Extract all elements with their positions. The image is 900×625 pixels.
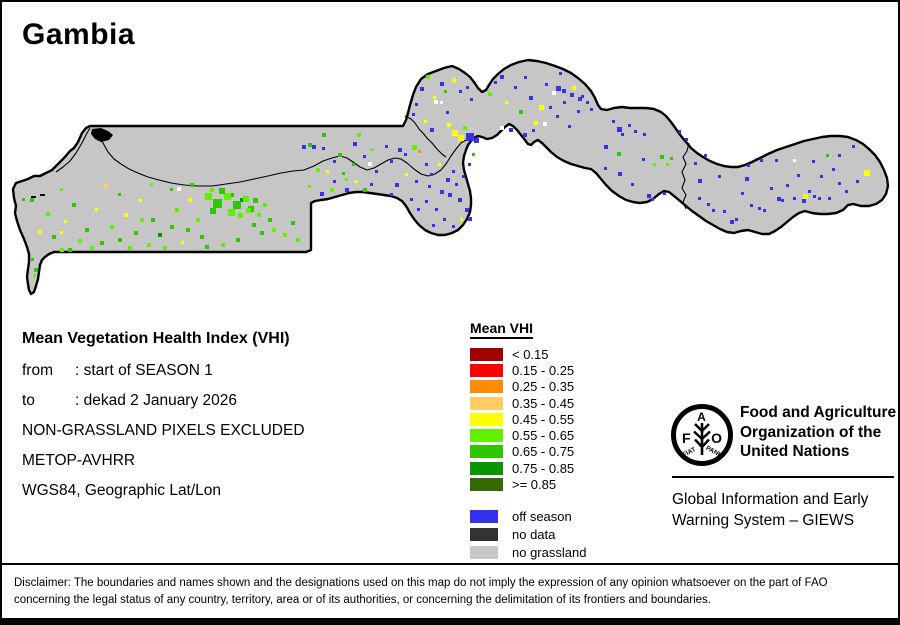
vhi-pixel xyxy=(797,174,800,177)
vhi-pixel xyxy=(170,225,174,229)
info-label-to: to xyxy=(22,392,75,410)
vhi-pixel xyxy=(793,159,796,162)
vhi-pixel xyxy=(246,208,251,213)
vhi-pixel xyxy=(653,163,656,166)
vhi-pixel xyxy=(612,120,615,123)
legend-row: 0.75 - 0.85 xyxy=(470,460,574,476)
vhi-pixel xyxy=(72,203,76,207)
vhi-pixel xyxy=(363,155,366,158)
fao-name-line: Organization of the xyxy=(740,423,896,443)
vhi-pixel xyxy=(440,101,443,104)
vhi-pixel xyxy=(488,92,492,96)
vhi-pixel xyxy=(462,175,465,178)
legend-swatch xyxy=(470,364,503,377)
legend-swatch xyxy=(470,413,503,426)
legend-swatch xyxy=(470,478,503,491)
vhi-pixel xyxy=(326,170,329,173)
vhi-pixel xyxy=(448,193,452,197)
legend-row: no data xyxy=(470,525,586,543)
vhi-pixel xyxy=(777,197,781,201)
vhi-pixel xyxy=(832,168,835,171)
vhi-pixel xyxy=(770,187,773,190)
vhi-pixel xyxy=(435,208,438,211)
vhi-pixel xyxy=(532,129,535,132)
vhi-pixel xyxy=(534,121,538,125)
vhi-pixel xyxy=(68,248,72,252)
vhi-pixel xyxy=(500,126,504,130)
vhi-pixel xyxy=(34,268,38,272)
vhi-pixel xyxy=(140,218,144,222)
coast-islet-mark xyxy=(31,196,36,198)
vhi-pixel xyxy=(572,86,576,90)
vhi-pixel xyxy=(390,160,393,163)
vhi-pixel xyxy=(463,126,467,130)
vhi-pixel xyxy=(820,175,823,178)
legend-label: no data xyxy=(512,527,555,542)
vhi-pixel xyxy=(631,183,634,186)
legend-swatch xyxy=(470,397,503,410)
vhi-pixel xyxy=(852,145,855,148)
legend-label: 0.55 - 0.65 xyxy=(512,428,574,443)
vhi-pixel xyxy=(678,130,681,133)
vhi-pixel xyxy=(539,105,544,110)
vhi-pixel xyxy=(415,180,418,183)
vhi-pixel xyxy=(529,96,533,100)
fao-logo-letter-a: A xyxy=(697,410,706,424)
legend-swatch xyxy=(470,546,498,559)
vhi-pixel xyxy=(268,218,272,222)
vhi-pixel xyxy=(775,159,778,162)
vhi-pixel xyxy=(494,81,497,84)
vhi-pixel xyxy=(552,91,556,95)
gambia-vhi-map xyxy=(2,54,898,306)
vhi-pixel xyxy=(430,128,434,132)
vhi-pixel xyxy=(604,167,607,170)
vhi-pixel xyxy=(735,218,738,221)
giews-line: Global Information and Early xyxy=(672,489,868,510)
disclaimer-line: Disclaimer: The boundaries and names sho… xyxy=(14,575,896,592)
vhi-pixel xyxy=(368,162,372,166)
vhi-pixel xyxy=(302,145,306,149)
vhi-pixel xyxy=(320,192,324,196)
vhi-pixel xyxy=(786,184,789,187)
vhi-pixel xyxy=(395,183,399,187)
vhi-pixel xyxy=(205,193,212,200)
vhi-pixel xyxy=(238,213,243,218)
vhi-pixel xyxy=(813,195,816,198)
vhi-pixel xyxy=(200,235,204,239)
vhi-pixel xyxy=(452,225,455,228)
giews-block: Global Information and Early Warning Sys… xyxy=(672,489,868,531)
vhi-pixel xyxy=(741,192,744,195)
vhi-pixel xyxy=(458,198,462,202)
vhi-pixel xyxy=(864,170,870,176)
vhi-pixel xyxy=(425,200,428,203)
vhi-pixel xyxy=(586,101,589,104)
disclaimer-line: concerning the legal status of any count… xyxy=(14,592,896,609)
vhi-pixel xyxy=(559,72,562,75)
vhi-pixel xyxy=(856,180,859,183)
vhi-pixel xyxy=(333,180,336,183)
legend-swatch xyxy=(470,462,503,475)
vhi-pixel xyxy=(46,212,50,216)
vhi-pixel xyxy=(763,209,766,212)
vhi-pixel xyxy=(745,177,749,181)
vhi-pixel xyxy=(210,208,216,214)
vhi-pixel xyxy=(617,152,621,156)
info-value-to: : dekad 2 January 2026 xyxy=(75,392,237,409)
vhi-pixel xyxy=(818,197,821,200)
legend-row: >= 0.85 xyxy=(470,476,574,492)
coast-islet-mark xyxy=(40,194,45,196)
vhi-pixel xyxy=(60,248,64,252)
vhi-pixel xyxy=(549,106,552,109)
legend-label: 0.75 - 0.85 xyxy=(512,461,574,476)
vhi-pixel xyxy=(628,124,631,127)
vhi-pixel xyxy=(802,199,806,203)
legend-row: 0.65 - 0.75 xyxy=(470,444,574,460)
vhi-pixel xyxy=(355,180,358,183)
vhi-pixel xyxy=(60,188,63,191)
vhi-pixel xyxy=(434,100,438,104)
vhi-pixel xyxy=(357,133,361,137)
vhi-pixel xyxy=(118,238,122,242)
legend-row: no grassland xyxy=(470,544,586,562)
info-value-from: : start of SEASON 1 xyxy=(75,362,213,379)
vhi-pixel xyxy=(452,130,458,136)
vhi-pixel xyxy=(466,133,474,141)
vhi-pixel xyxy=(793,197,796,200)
vhi-pixel xyxy=(519,110,523,114)
vhi-pixel xyxy=(52,235,56,239)
vhi-pixel xyxy=(446,111,449,114)
vhi-pixel xyxy=(291,221,295,225)
vhi-pixel xyxy=(345,188,349,192)
legend-row: 0.15 - 0.25 xyxy=(470,362,574,378)
legend-row: 0.45 - 0.55 xyxy=(470,411,574,427)
vhi-pixel xyxy=(446,178,450,182)
vhi-pixel xyxy=(747,164,750,167)
vhi-pixel xyxy=(698,197,701,200)
vhi-pixel xyxy=(618,172,622,176)
vhi-pixel xyxy=(433,96,436,99)
fao-divider xyxy=(672,476,894,478)
vhi-pixel xyxy=(460,218,463,221)
legend-swatch xyxy=(470,445,503,458)
vhi-pixel xyxy=(647,194,651,198)
legend-label: 0.65 - 0.75 xyxy=(512,444,574,459)
legend-row: 0.35 - 0.45 xyxy=(470,395,574,411)
info-line-sensor: METOP-AVHRR xyxy=(22,452,305,482)
vhi-pixel xyxy=(177,187,181,191)
vhi-pixel xyxy=(585,72,588,75)
vhi-pixel xyxy=(338,153,342,157)
country-shape xyxy=(13,60,888,294)
vhi-legend: Mean VHI < 0.15 0.15 - 0.25 0.25 - 0.35 … xyxy=(470,320,574,493)
vhi-pixel xyxy=(472,153,475,156)
vhi-pixel xyxy=(370,148,373,151)
vhi-pixel xyxy=(718,175,721,178)
fao-motto-fiat: FIAT xyxy=(681,446,697,459)
vhi-pixel xyxy=(663,192,666,195)
vhi-pixel xyxy=(424,120,427,123)
fao-logo-letter-o: O xyxy=(711,430,722,446)
vhi-pixel xyxy=(181,241,184,244)
fao-logo: A F O FIAT PANIS xyxy=(670,403,734,467)
vhi-pixel xyxy=(134,231,138,235)
vhi-pixel xyxy=(170,188,173,191)
vhi-pixel xyxy=(60,231,63,234)
vhi-pixel xyxy=(221,243,225,247)
vhi-pixel xyxy=(190,183,194,187)
vhi-pixel xyxy=(838,154,841,157)
vhi-pixel xyxy=(470,98,473,101)
fao-name-block: Food and Agriculture Organization of the… xyxy=(740,403,896,462)
vhi-pixel xyxy=(210,188,214,192)
legend-row: off season xyxy=(470,507,586,525)
info-label-from: from xyxy=(22,362,75,380)
vhi-pixel xyxy=(730,220,734,224)
vhi-pixel xyxy=(412,145,417,150)
vhi-pixel xyxy=(390,193,393,196)
vhi-pixel xyxy=(432,224,435,227)
page-title: Gambia xyxy=(22,18,135,52)
vhi-pixel xyxy=(556,115,559,118)
vhi-pixel xyxy=(260,231,264,235)
vhi-pixel xyxy=(410,198,413,201)
disclaimer: Disclaimer: The boundaries and names sho… xyxy=(14,575,896,609)
vhi-pixel xyxy=(417,208,420,211)
vhi-pixel xyxy=(78,239,82,243)
vhi-pixel xyxy=(147,243,151,247)
vhi-pixel xyxy=(312,145,316,149)
vhi-pixel xyxy=(22,198,25,201)
vhi-pixel xyxy=(175,208,179,212)
vhi-pixel xyxy=(257,213,261,217)
legend-label: 0.15 - 0.25 xyxy=(512,363,574,378)
vhi-pixel xyxy=(474,138,479,143)
vhi-pixel xyxy=(458,135,464,141)
vhi-pixel xyxy=(590,108,593,111)
vhi-pixel xyxy=(642,158,645,161)
vhi-pixel xyxy=(110,225,114,229)
vhi-pixel xyxy=(812,160,815,163)
vhi-pixel xyxy=(426,75,430,79)
vhi-pixel xyxy=(363,188,367,192)
legend-row: < 0.15 xyxy=(470,346,574,362)
vhi-pixel xyxy=(570,93,574,97)
vhi-pixel xyxy=(375,170,378,173)
vhi-pixel xyxy=(415,103,418,106)
vhi-pixel xyxy=(398,148,402,152)
vhi-pixel xyxy=(420,87,424,91)
vhi-pixel xyxy=(604,145,608,149)
vhi-pixel xyxy=(430,173,433,176)
legend-swatch xyxy=(470,380,503,393)
vhi-pixel xyxy=(412,113,415,116)
vhi-pixel xyxy=(95,208,98,211)
vhi-pixel xyxy=(213,199,222,208)
map-document-frame: Gambia Mean Vegetation Health Index (VHI… xyxy=(0,0,900,625)
info-heading: Mean Vegetation Health Index (VHI) xyxy=(22,330,305,362)
legend-row: 0.25 - 0.35 xyxy=(470,379,574,395)
vhi-pixel xyxy=(545,83,548,86)
vhi-pixel xyxy=(158,233,162,237)
vhi-pixel xyxy=(563,101,566,104)
vhi-pixel xyxy=(233,201,241,209)
vhi-pixel xyxy=(838,182,841,185)
vhi-pixel xyxy=(568,125,571,128)
vhi-pixel xyxy=(128,246,132,250)
vhi-pixel xyxy=(452,170,455,173)
vhi-pixel xyxy=(651,198,654,201)
vhi-pixel xyxy=(447,123,451,127)
info-line-projection: WGS84, Geographic Lat/Lon xyxy=(22,482,305,512)
info-row-to: to: dekad 2 January 2026 xyxy=(22,392,305,422)
vhi-pixel xyxy=(781,199,784,202)
fao-name-line: United Nations xyxy=(740,442,896,462)
vhi-pixel xyxy=(634,130,637,133)
vhi-pixel xyxy=(758,207,761,210)
vhi-pixel xyxy=(30,198,34,202)
vhi-pixel xyxy=(322,133,326,137)
vhi-pixel xyxy=(196,218,200,222)
vhi-pixel xyxy=(308,143,312,147)
vhi-pixel xyxy=(308,185,311,188)
vhi-pixel xyxy=(283,233,287,237)
vhi-pixel xyxy=(205,245,209,249)
vhi-pixel xyxy=(577,110,580,113)
vhi-pixel xyxy=(704,154,707,157)
vhi-pixel xyxy=(236,238,240,242)
vhi-pixel xyxy=(712,209,715,212)
vhi-pixel xyxy=(322,147,325,150)
vhi-pixel xyxy=(352,163,355,166)
vhi-pixel xyxy=(428,185,431,188)
vhi-pixel xyxy=(252,223,256,227)
vhi-pixel xyxy=(578,97,582,101)
vhi-pixel xyxy=(468,217,472,221)
vhi-pixel xyxy=(670,157,673,160)
vhi-pixel xyxy=(723,210,726,213)
vhi-pixel xyxy=(345,178,348,181)
vhi-pixel xyxy=(425,163,428,166)
legend-row: 0.55 - 0.65 xyxy=(470,427,574,443)
legend-label: 0.35 - 0.45 xyxy=(512,396,574,411)
vhi-pixel xyxy=(85,228,89,232)
vhi-pixel xyxy=(808,190,811,193)
vhi-pixel xyxy=(38,230,42,234)
vhi-pixel xyxy=(440,82,444,86)
vhi-pixel xyxy=(523,133,527,137)
vhi-pixel xyxy=(228,209,235,216)
vhi-pixel xyxy=(118,193,121,196)
disclaimer-divider xyxy=(2,563,898,565)
vhi-pixel xyxy=(440,190,444,194)
vhi-pixel xyxy=(707,203,710,206)
vhi-pixel xyxy=(452,78,456,82)
info-line-exclusion: NON-GRASSLAND PIXELS EXCLUDED xyxy=(22,422,305,452)
vhi-pixel xyxy=(666,163,669,166)
vhi-pixel xyxy=(698,179,702,183)
vhi-pixel xyxy=(90,246,94,250)
vhi-pixel xyxy=(224,193,231,200)
vhi-pixel xyxy=(505,101,508,104)
legend-title: Mean VHI xyxy=(470,320,533,339)
vhi-pixel xyxy=(468,163,471,166)
vhi-pixel xyxy=(31,258,34,261)
vhi-pixel xyxy=(509,128,513,132)
vhi-pixel xyxy=(163,246,167,250)
vhi-pixel xyxy=(643,133,646,136)
vhi-pixel xyxy=(524,76,527,79)
vhi-pixel xyxy=(253,198,258,203)
vhi-pixel xyxy=(104,184,108,188)
vhi-pixel xyxy=(139,199,142,202)
vhi-pixel xyxy=(443,218,446,221)
legend-label: 0.45 - 0.55 xyxy=(512,412,574,427)
vhi-pixel xyxy=(33,274,36,277)
vhi-pixel xyxy=(188,198,192,202)
vhi-pixel xyxy=(151,218,155,222)
vhi-pixel xyxy=(760,159,763,162)
vhi-pixel xyxy=(750,204,753,207)
legend-label: off season xyxy=(512,509,572,524)
info-row-from: from: start of SEASON 1 xyxy=(22,362,305,392)
vhi-pixel xyxy=(64,220,67,223)
map-info-block: Mean Vegetation Health Index (VHI) from:… xyxy=(22,330,305,512)
legend-label: >= 0.85 xyxy=(512,477,556,492)
vhi-pixel xyxy=(826,154,829,157)
vhi-pixel xyxy=(405,173,408,176)
vhi-pixel xyxy=(418,150,421,153)
vhi-pixel xyxy=(660,155,664,159)
vhi-pixel xyxy=(514,86,517,89)
vhi-pixel xyxy=(370,183,373,186)
vhi-pixel xyxy=(455,183,458,186)
vhi-pixel xyxy=(333,160,336,163)
vhi-pixel xyxy=(330,188,334,192)
vhi-pixel xyxy=(100,241,104,245)
vhi-pixel xyxy=(444,90,447,93)
vhi-pixel xyxy=(465,208,469,212)
vhi-pixel xyxy=(219,188,225,194)
legend-swatch xyxy=(470,348,503,361)
season-legend: off season no data no grassland xyxy=(470,507,586,562)
vhi-pixel xyxy=(845,190,848,193)
fao-logo-letter-f: F xyxy=(682,430,691,446)
legend-label: no grassland xyxy=(512,545,586,560)
vhi-pixel xyxy=(556,86,561,91)
vhi-pixel xyxy=(500,75,504,79)
vhi-pixel xyxy=(803,194,808,199)
legend-label: < 0.15 xyxy=(512,347,549,362)
legend-swatch xyxy=(470,429,503,442)
vhi-pixel xyxy=(404,153,407,156)
legend-swatch xyxy=(470,528,498,541)
vhi-pixel xyxy=(694,162,697,165)
vhi-pixel xyxy=(296,238,300,242)
vhi-pixel xyxy=(438,163,441,166)
vhi-pixel xyxy=(243,196,249,202)
legend-swatch xyxy=(470,510,498,523)
vhi-pixel xyxy=(385,145,388,148)
vhi-pixel xyxy=(353,142,357,146)
vhi-pixel xyxy=(459,90,462,93)
legend-label: 0.25 - 0.35 xyxy=(512,379,574,394)
vhi-pixel xyxy=(186,228,190,232)
vhi-pixel xyxy=(263,203,267,207)
